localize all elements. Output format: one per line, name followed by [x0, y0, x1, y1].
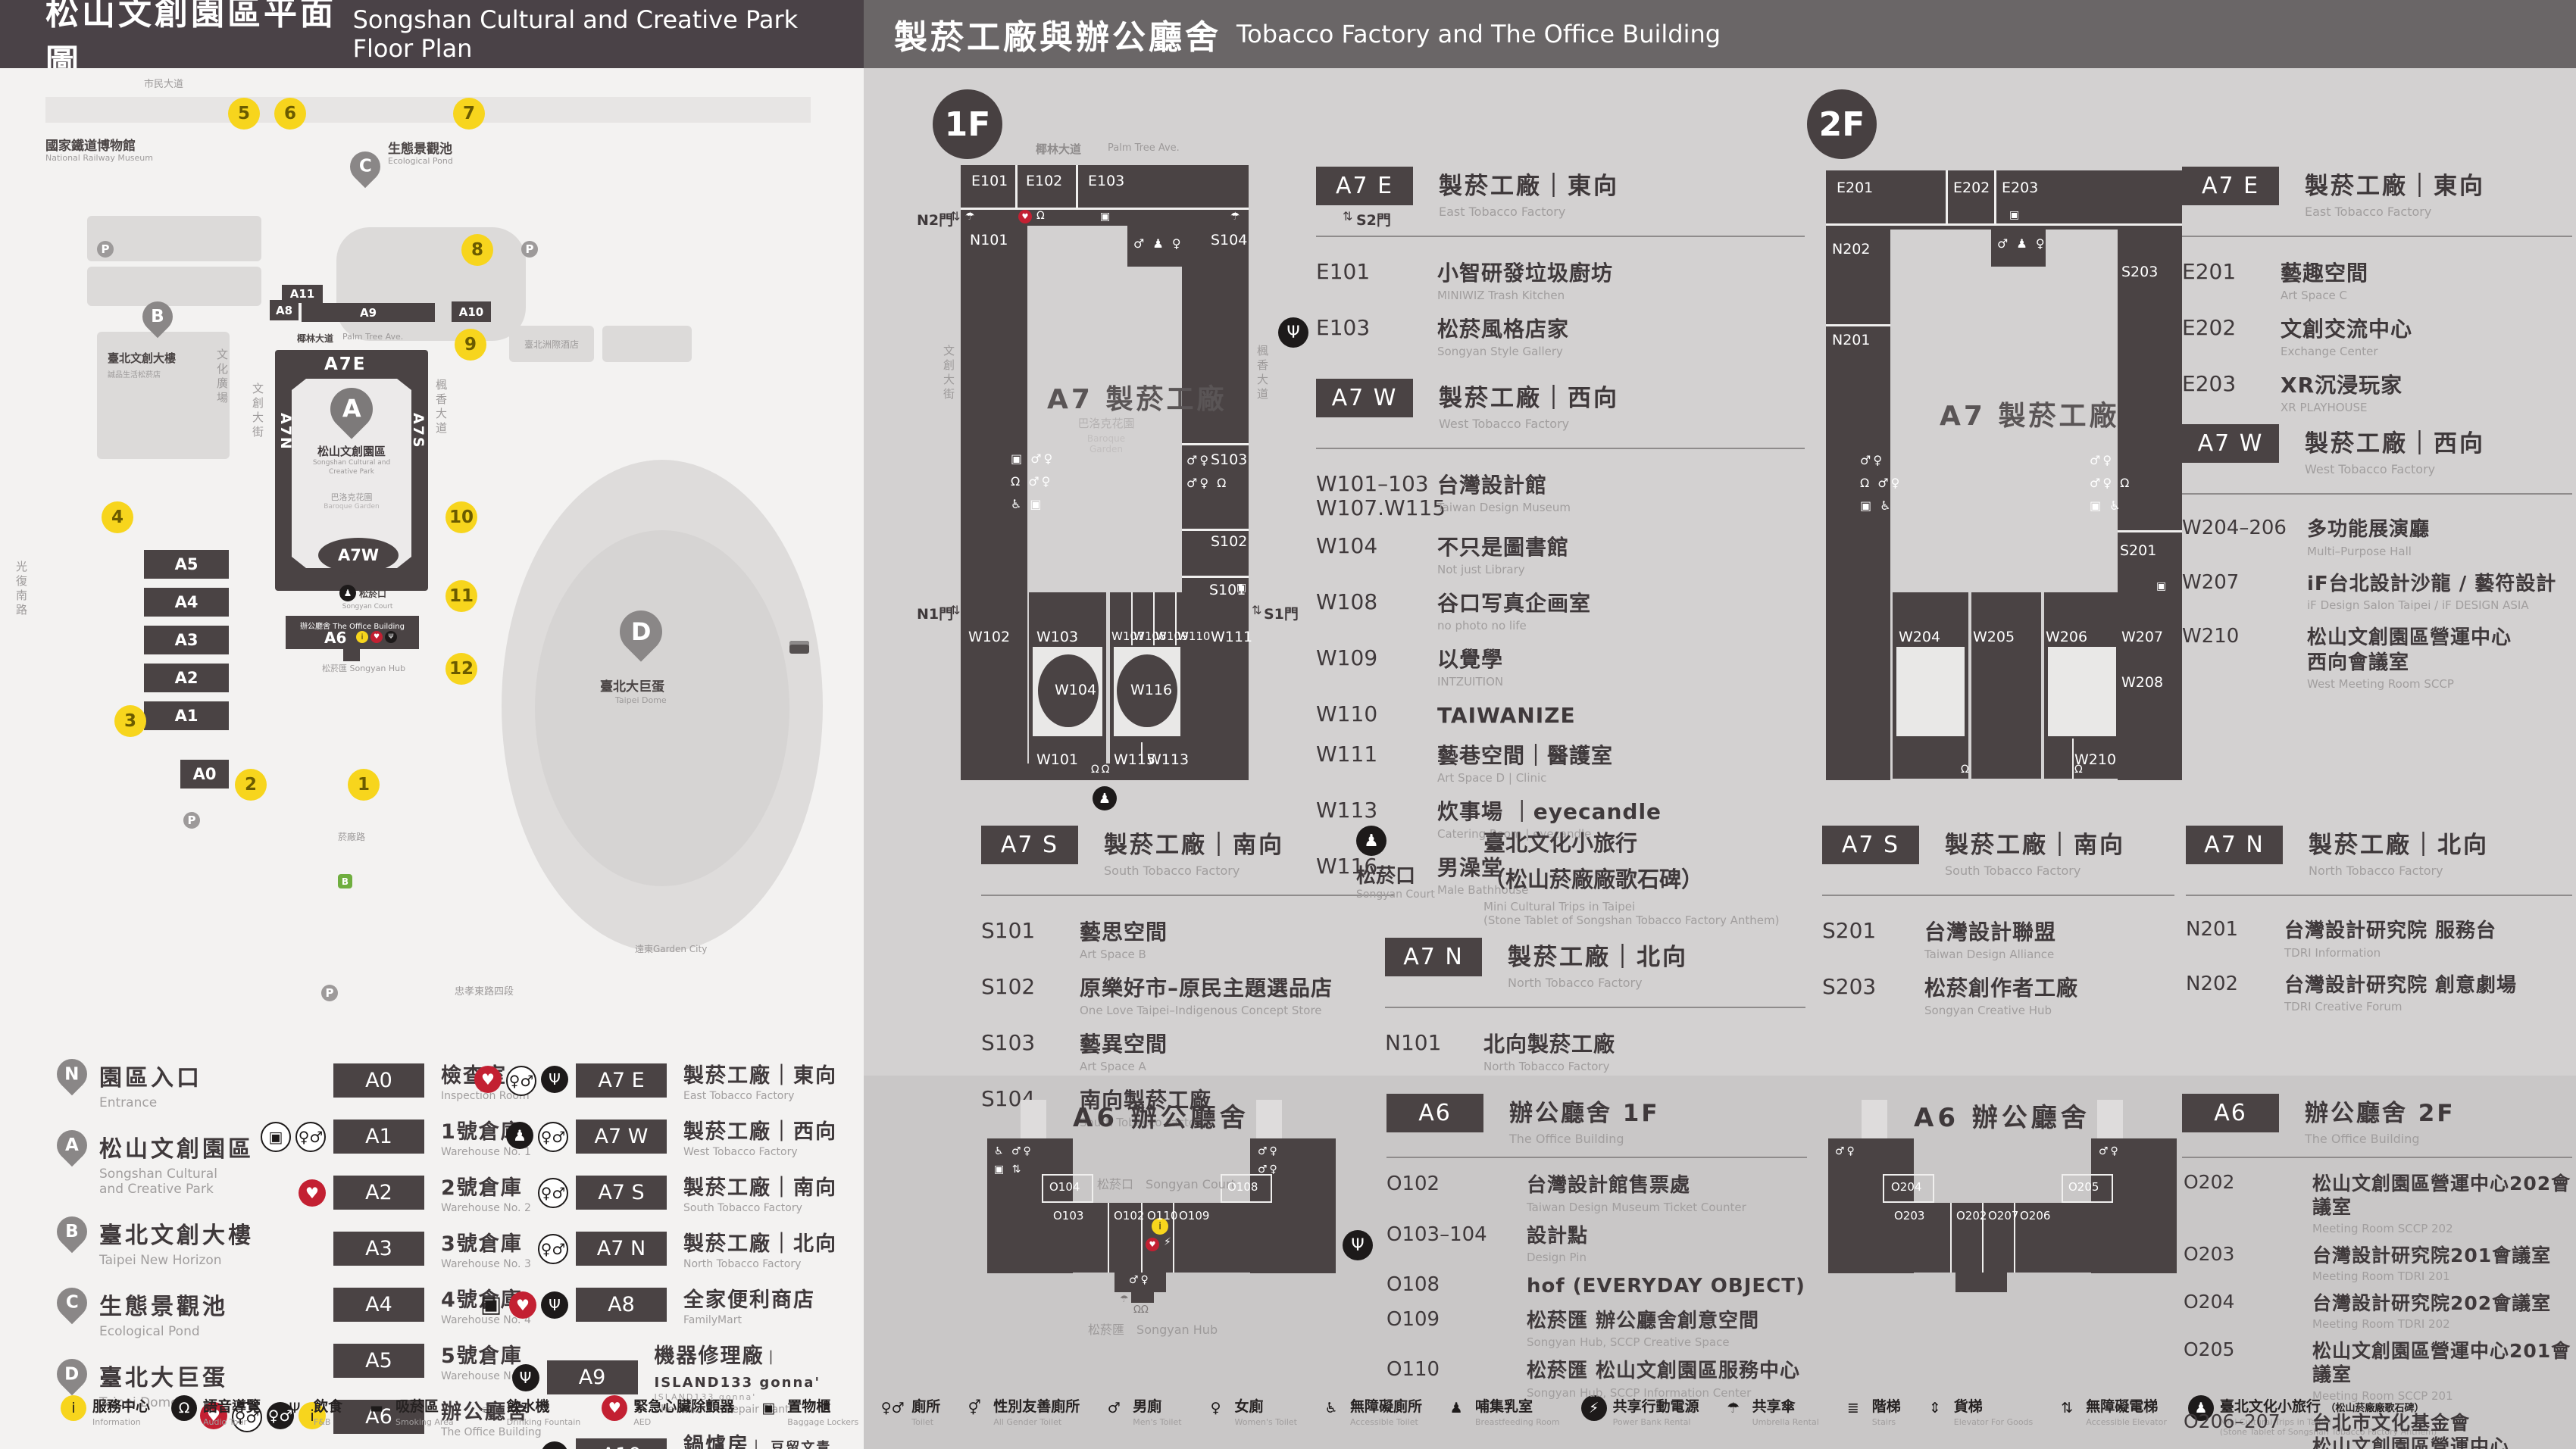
- room-code: O110: [1386, 1359, 1527, 1400]
- court-title2: （松山菸廠廠歌石碑）: [1483, 862, 1779, 894]
- room-code: O108: [1386, 1274, 1527, 1299]
- legend-row-icons: Ψ: [470, 1364, 539, 1391]
- gate-s1: S1門: [1264, 603, 1299, 623]
- room-label: O103: [1053, 1209, 1083, 1223]
- room-label: S102: [1211, 533, 1247, 550]
- building-code-box: A2: [333, 1176, 424, 1210]
- entrance-number: 2: [235, 769, 267, 801]
- section-title-en: North Tobacco Factory: [2309, 863, 2489, 878]
- a9-block: A9: [302, 303, 435, 322]
- a7s-label: A7S: [410, 413, 427, 449]
- a7-big-label-1f: A7 製菸工廠: [1047, 377, 1227, 417]
- right-header-title-zh: 製菸工廠與辦公廳舍: [894, 10, 1221, 58]
- room-label: S203: [2121, 264, 2158, 280]
- gate-arrows: ⇅: [950, 209, 960, 223]
- icon-legend-en: All Gender Toilet: [993, 1417, 1080, 1427]
- section-a7e-1f: A7 E 製菸工廠｜東向 East Tobacco Factory E101 小…: [1316, 167, 1805, 372]
- hotel-building: 臺北洲際酒店: [509, 326, 594, 362]
- building-name-en: North Tobacco Factory: [683, 1258, 837, 1270]
- icon-legend-item: ♥ 緊急心臟除顫器 AED: [602, 1395, 734, 1437]
- section-title-zh: 製菸工廠｜南向: [1104, 826, 1284, 860]
- baroque-label-zh: 巴洛克花園: [292, 491, 411, 503]
- parking-icon: P: [321, 985, 338, 1001]
- icon-legend-zh: 階梯: [1872, 1398, 1901, 1415]
- section-badge: A7 S: [981, 826, 1078, 864]
- icon-legend-zh: 男廁: [1133, 1398, 1161, 1415]
- legend-icon: ☕: [475, 1395, 501, 1421]
- icon-legend-text: 置物櫃 Baggage Lockers: [787, 1395, 858, 1427]
- room-code: O109: [1386, 1309, 1527, 1350]
- room-code: E203: [2182, 372, 2281, 414]
- room-row: W207 iF台北設計沙龍 / 藝符設計 iF Design Salon Tai…: [2182, 572, 2572, 613]
- a6-stub: [343, 649, 360, 661]
- section-title-en: The Office Building: [1509, 1132, 1660, 1146]
- floor-badge-1f: 1F: [933, 89, 1002, 159]
- legend-icon: ♂: [1101, 1395, 1127, 1421]
- warehouse-block: A1: [144, 701, 229, 730]
- restroom-icons: ♂♀: [1129, 1274, 1151, 1286]
- legend-icon: ♟: [506, 1122, 533, 1149]
- icon-cluster: ▣ ⇅: [994, 1163, 1023, 1176]
- street-maple: 楓香大道: [433, 379, 449, 436]
- room-zh: 台灣設計館: [1437, 472, 1571, 498]
- tower: [2097, 1100, 2123, 1142]
- room-zh2: 西向會議室: [2307, 651, 2512, 676]
- hub-map-label-1f: 松菸匯 Songyan Hub: [1088, 1319, 1218, 1338]
- room-zh: 台灣設計聯盟: [1924, 919, 2056, 945]
- building-code-box: A7 W: [576, 1120, 667, 1154]
- room-code: O206–207: [2184, 1411, 2312, 1449]
- room-zh: hof (EVERYDAY OBJECT): [1527, 1274, 1805, 1299]
- divider: [2072, 739, 2074, 779]
- room-en: Meeting Room TDRI 202: [2312, 1317, 2551, 1331]
- icon-legend-text: 廁所 Toilet: [911, 1395, 940, 1427]
- legend-icon: Ψ: [512, 1364, 539, 1391]
- room-row: S201 台灣設計聯盟 Taiwan Design Alliance: [1822, 919, 2174, 961]
- icon-legend-en: Women's Toilet: [1235, 1417, 1297, 1427]
- legend-icon: ⇕: [1922, 1395, 1948, 1421]
- legend-icon: ♥: [474, 1066, 502, 1093]
- room-en: West Meeting Room SCCP: [2307, 677, 2512, 691]
- room-label: S201: [2120, 542, 2156, 559]
- legend-icon: ♀♂: [538, 1234, 568, 1264]
- icon-cluster: ♂♀: [1258, 1145, 1280, 1157]
- room-row: W204–206 多功能展演廳 Multi–Purpose Hall: [2182, 517, 2572, 558]
- power-icon: ⚡: [1164, 1236, 1174, 1248]
- room-code: S201: [1822, 919, 1924, 961]
- court-map-label-1f: 松菸口 Songyan Court: [1097, 1174, 1236, 1192]
- section-a6-1f: A6 辦公廳舍 1F The Office Building O102 台灣設計…: [1386, 1094, 1807, 1410]
- icon-legend-en: Information: [92, 1417, 150, 1427]
- a0-block: A0: [180, 760, 229, 789]
- icon-cluster: ♂♀: [2090, 453, 2114, 467]
- icon-legend-en: Baggage Lockers: [787, 1417, 858, 1427]
- legend-row-icons: ♥♀♂Ψ: [470, 1066, 568, 1096]
- room-label: E203: [2002, 180, 2038, 196]
- room-label: O204: [1891, 1180, 1921, 1194]
- street-cultural-blvd-1f: 文創大街: [941, 345, 957, 402]
- room-row: O102 台灣設計館售票處 Taiwan Design Museum Ticke…: [1386, 1173, 1807, 1214]
- room-label: O110: [1147, 1209, 1177, 1223]
- room-zh: TAIWANIZE: [1437, 702, 1576, 729]
- legend-icon: ♿: [1318, 1395, 1344, 1421]
- room-en: Art Space D | Clinic: [1437, 771, 1613, 785]
- icon-legend-item: ♀♂ 廁所 Toilet: [880, 1395, 940, 1437]
- a7-south-wing-1f: [1182, 226, 1249, 780]
- icon-cluster: Ω ♂♀: [1011, 474, 1052, 489]
- icon-legend-item: ⇕ 貨梯 Elevator For Goods: [1922, 1395, 2033, 1437]
- room-zh: 松菸匯 松山文創園區服務中心: [1527, 1359, 1800, 1384]
- section-title-en: The Office Building: [2305, 1132, 2456, 1146]
- building-code-box: A4: [333, 1288, 424, 1322]
- room-code: N201: [2186, 919, 2284, 960]
- section-a7s-2f: A7 S 製菸工廠｜南向 South Tobacco Factory S201 …: [1822, 826, 2174, 1031]
- room-label: E202: [1953, 180, 1990, 196]
- room-code: E101: [1316, 260, 1437, 302]
- room-label: W206: [2046, 629, 2087, 645]
- room-label: W104: [1055, 682, 1096, 698]
- room-en: Songyan Style Gallery: [1437, 345, 1569, 358]
- section-title-zh: 製菸工廠｜東向: [1439, 167, 1619, 201]
- icon-legend-en: Accessible Toilet: [1350, 1417, 1422, 1427]
- street-yanchang: 菸廠路: [338, 830, 365, 843]
- room-row: W111 藝巷空間｜醫護室 Art Space D | Clinic: [1316, 742, 1805, 785]
- room-code: N202: [2186, 973, 2284, 1014]
- room-zh: 台灣設計研究院 創意劇場: [2284, 973, 2517, 998]
- legend-pin-en: Entrance: [99, 1095, 202, 1110]
- restroom-icons: ♂ ♟ ♀: [1997, 236, 2047, 251]
- umbrella-icon: ☂: [1230, 211, 1243, 223]
- room-code: O203: [2184, 1244, 2312, 1283]
- room-code: W101–103W107.W115: [1316, 472, 1437, 520]
- gate-arrows: ⇅: [1252, 603, 1261, 617]
- room-code: O205: [2184, 1339, 2312, 1403]
- divider: [2182, 493, 2572, 495]
- icon-legend-zh: 語音導覽: [203, 1398, 261, 1415]
- section-badge: A7 E: [1316, 167, 1413, 205]
- room-zh: 谷口写真企画室: [1437, 590, 1591, 617]
- restroom-icons: ♂ ♟ ♀: [1133, 236, 1183, 251]
- locker-icon: ▣: [2009, 209, 2021, 221]
- park-court-zh: 松菸口: [359, 587, 386, 600]
- a7-big-label-2f: A7 製菸工廠: [1940, 394, 2119, 433]
- room-zh: 設計點: [1527, 1224, 1588, 1249]
- building-code-box: A5: [333, 1344, 424, 1378]
- a6-map-title-1f: A6 辦公廳舍: [1073, 1097, 1249, 1134]
- parking-icon: P: [521, 241, 538, 258]
- room-row: E201 藝趣空間 Art Space C: [2182, 260, 2572, 302]
- divider: [1015, 165, 1018, 208]
- room-row: O103–104 設計點 Design Pin: [1386, 1224, 1807, 1265]
- a7e-label: A7E: [324, 354, 367, 374]
- icon-cluster: ♂♀: [1258, 1163, 1280, 1176]
- legend-pin-icon: N: [51, 1053, 94, 1096]
- divider: [1822, 895, 2174, 896]
- pin-box: A: [57, 1130, 99, 1160]
- entrance-number: 12: [445, 653, 477, 685]
- room-zh: 多功能展演廳: [2307, 517, 2430, 542]
- room-label: W113: [1147, 751, 1189, 768]
- divider: [981, 895, 1394, 896]
- room-row: E202 文創交流中心 Exchange Center: [2182, 316, 2572, 358]
- legend-icon: ▣: [477, 1291, 505, 1319]
- building-code-box: A8: [576, 1288, 667, 1322]
- section-title-zh: 製菸工廠｜南向: [1945, 826, 2125, 860]
- legend-row-icons: ♥: [227, 1179, 326, 1207]
- legend-icon: ♀♂: [880, 1395, 905, 1421]
- building-name-zh: 機器修理廠｜ ISLAND133 gonna'ISLAND133 gonna': [655, 1339, 864, 1402]
- legend-icon: Ψ: [541, 1291, 568, 1319]
- building-name-zh: 製菸工廠｜北向: [683, 1227, 837, 1257]
- legend-pin-zh: 生態景觀池: [99, 1288, 228, 1321]
- room-zh: 台灣設計館售票處: [1527, 1173, 1746, 1198]
- room-zh: 文創交流中心: [2281, 316, 2412, 342]
- baroque-label-en: Baroque Garden: [292, 503, 411, 511]
- legend-icon: ▣: [755, 1395, 781, 1421]
- parking-icon: P: [97, 241, 114, 258]
- divider: [1950, 1203, 1952, 1273]
- pin-c: C: [344, 145, 387, 189]
- room-code: E202: [2182, 316, 2281, 358]
- legend-icon: ⇅: [2054, 1395, 2080, 1421]
- room-zh: 藝異空間: [1080, 1031, 1168, 1057]
- legend-pin-zh: 臺北大巨蛋: [99, 1359, 228, 1392]
- taipei-dome-roof: [535, 530, 789, 886]
- section-badge: A7 N: [2186, 826, 2283, 864]
- icon-cluster: ♂♀: [1835, 1145, 1857, 1157]
- street-palm-en: Palm Tree Ave.: [342, 332, 403, 342]
- building-name: 全家便利商店 FamilyMart: [683, 1283, 815, 1326]
- room-label: W103: [1036, 629, 1078, 645]
- a7-south-wing-2f: [2118, 227, 2182, 780]
- room-code: E201: [2182, 260, 2281, 302]
- room-label: S104: [1211, 232, 1247, 248]
- icon-cluster: ♂♀: [2099, 1145, 2121, 1157]
- icon-legend-zh: 無障礙電梯: [2086, 1398, 2158, 1415]
- park-court-en: Songyan Court: [318, 603, 417, 611]
- icon-legend-en: Smoking Area: [395, 1417, 454, 1427]
- divider: [1826, 223, 2182, 226]
- umbrella-icon: ☂: [1120, 1294, 1129, 1305]
- icon-legend-item: ☕ 飲水機 Drinking Fountain: [475, 1395, 581, 1437]
- room-label: N202: [1832, 241, 1870, 258]
- section-title-en: East Tobacco Factory: [2305, 205, 2485, 219]
- building-code-box: A7 S: [576, 1176, 667, 1210]
- divider: [1182, 443, 1249, 445]
- youbike-icon: B: [338, 874, 352, 888]
- building-code-box: A9: [547, 1360, 638, 1394]
- legend-icon: ▣: [261, 1122, 291, 1152]
- locker-icon: ▣: [1100, 211, 1112, 223]
- mall-building: [602, 326, 692, 362]
- legend-pin-en: Ecological Pond: [99, 1324, 228, 1339]
- room-row: N202 台灣設計研究院 創意劇場 TDRI Creative Forum: [2186, 973, 2572, 1014]
- section-title-en: East Tobacco Factory: [1439, 205, 1619, 219]
- floor-plan-poster: 松山文創園區平面圖 Songshan Cultural and Creative…: [0, 0, 2576, 1449]
- legend-pin-text: 生態景觀池 Ecological Pond: [99, 1288, 228, 1339]
- umbrella-icon: ☂: [965, 211, 977, 223]
- room-zh: 松菸創作者工廠: [1924, 975, 2078, 1001]
- room-zh: 松山文創園區營運中心: [2307, 626, 2512, 651]
- room-icon: Ψ: [1278, 317, 1308, 348]
- room-en: XR PLAYHOUSE: [2281, 401, 2402, 414]
- pond-label-en: Ecological Pond: [388, 156, 453, 166]
- icon-legend-text: 男廁 Men's Toilet: [1133, 1395, 1181, 1427]
- songyan-court-icon: ♟: [1356, 826, 1386, 856]
- building-name-en: FamilyMart: [683, 1314, 815, 1326]
- bus-icon: [789, 641, 809, 654]
- room-zh: 台北市文化基金會: [2312, 1411, 2572, 1435]
- icon-legend-en: Elevator For Goods: [1954, 1417, 2033, 1427]
- tower: [1862, 1100, 1887, 1142]
- room-label: O109: [1179, 1209, 1209, 1223]
- building-name-en: East Tobacco Factory: [683, 1090, 837, 1102]
- section-badge: A7 S: [1822, 826, 1919, 864]
- room-row: O108 hof (EVERYDAY OBJECT): [1386, 1274, 1807, 1299]
- room-zh: 不只是圖書館: [1437, 534, 1569, 561]
- room-zh: 炊事場 ｜eyecandle: [1437, 798, 1662, 825]
- icon-legend-text: 飲食 F&B: [314, 1395, 342, 1427]
- room-en: Multi–Purpose Hall: [2307, 545, 2430, 558]
- room-code: W108: [1316, 590, 1437, 632]
- legend-pin-icon: B: [51, 1210, 94, 1254]
- fnb-icon: Ψ: [385, 631, 397, 643]
- building-code-box: A1: [333, 1120, 424, 1154]
- room-row: S101 藝思空間 Art Space B: [981, 919, 1394, 961]
- legend-icon: Ψ: [541, 1441, 568, 1449]
- icon-legend-item: ▣ 置物櫃 Baggage Lockers: [755, 1395, 858, 1437]
- icon-legend-en: Men's Toilet: [1133, 1417, 1181, 1427]
- warehouse-block: A5: [144, 550, 229, 579]
- room-en: Exchange Center: [2281, 345, 2412, 358]
- aed-icon: ♥: [1146, 1238, 1159, 1251]
- room-code: S203: [1822, 975, 1924, 1017]
- icon-legend-en: Audio Tour: [203, 1417, 261, 1427]
- room-code: W207: [2182, 572, 2307, 613]
- icon-legend-zh: 吸菸區: [395, 1398, 439, 1415]
- room-zh: 台灣設計研究院 服務台: [2284, 919, 2496, 944]
- a7w-oval: A7W: [318, 538, 399, 573]
- legend-icon: Ψ: [541, 1066, 568, 1093]
- aed-icon: ♥: [370, 631, 383, 643]
- room-code: S101: [981, 919, 1080, 961]
- warehouse-block: A4: [144, 588, 229, 617]
- legend-icon: ♥: [509, 1291, 536, 1319]
- fnb-icon: Ψ: [1343, 1230, 1373, 1260]
- aed-icon: ♥: [1018, 210, 1032, 223]
- section-badge: A6: [1386, 1094, 1483, 1132]
- legend-icon: ♥: [602, 1395, 627, 1421]
- divider: [2182, 236, 2572, 237]
- section-title-en: North Tobacco Factory: [1508, 976, 1688, 990]
- room-row: O204 台灣設計研究院202會議室 Meeting Room TDRI 202: [2182, 1291, 2572, 1331]
- icon-legend-item: ♀ 女廁 Women's Toilet: [1203, 1395, 1297, 1437]
- divider: [1076, 165, 1078, 208]
- a6-stub2-1f: [1131, 1292, 1154, 1303]
- songyan-court-icon: ♟: [1093, 786, 1117, 810]
- room-row: O109 松菸匯 辦公廳舍創意空間 Songyan Hub, SCCP Crea…: [1386, 1309, 1807, 1350]
- room-label: W110: [1177, 629, 1210, 643]
- building-name: 製菸工廠｜東向 East Tobacco Factory: [683, 1059, 837, 1102]
- room-row: N201 台灣設計研究院 服務台 TDRI Information: [2186, 919, 2572, 960]
- room-row: O110 松菸匯 松山文創園區服務中心 Songyan Hub, SCCP In…: [1386, 1359, 1807, 1400]
- room-zh: iF台北設計沙龍 / 藝符設計: [2307, 572, 2556, 597]
- audio-icons: ΩΩ: [1133, 1304, 1149, 1316]
- icon-cluster: ♂♀: [1860, 453, 1884, 467]
- pin-box: B: [57, 1216, 99, 1247]
- entrance-number: 3: [114, 705, 146, 737]
- room-label: W205: [1973, 629, 2015, 645]
- legend-b-list: ♥♀♂Ψ A7 E 製菸工廠｜東向 East Tobacco Factory ♟…: [470, 1059, 864, 1449]
- audio-icons: ΩΩ: [1091, 764, 1111, 776]
- parking-icon: P: [183, 812, 200, 829]
- divider: [1182, 576, 1249, 578]
- room-row: W104 不只是圖書館 Not just Library: [1316, 534, 1805, 576]
- legend-row: ♟♀♂ A7 W 製菸工廠｜西向 West Tobacco Factory: [470, 1115, 864, 1158]
- icon-legend-zh: 女廁: [1235, 1398, 1264, 1415]
- room-label: W116: [1130, 682, 1172, 698]
- street-palm-zh: 椰林大道: [297, 332, 333, 345]
- divider: [2182, 1157, 2572, 1158]
- divider: [1182, 529, 1249, 531]
- building-name: 製菸工廠｜西向 West Tobacco Factory: [683, 1115, 837, 1158]
- pond-label-zh: 生態景觀池: [388, 138, 452, 157]
- a7w-label: A7W: [338, 546, 379, 564]
- entrance-number: 1: [348, 769, 380, 801]
- a10-block: A10: [452, 301, 491, 322]
- legend-row: ♀♂ A7 S 製菸工廠｜南向 South Tobacco Factory: [470, 1171, 864, 1214]
- room-label: N101: [970, 232, 1008, 248]
- room-code: E103: [1316, 316, 1437, 358]
- legend-icon: ♀: [1203, 1395, 1229, 1421]
- room-code: W111: [1316, 742, 1437, 785]
- room-row: S103 藝異空間 Art Space A: [981, 1031, 1394, 1073]
- entrance-number: 10: [445, 501, 477, 533]
- room-en: MINIWIZ Trash Kitchen: [1437, 289, 1613, 302]
- room-row: W101–103W107.W115 台灣設計館 Taiwan Design Mu…: [1316, 472, 1805, 520]
- section-title-zh: 製菸工廠｜西向: [2305, 424, 2485, 458]
- room-row: S102 原樂好市–原民主題選品店 One Love Taipei–Indige…: [981, 975, 1394, 1017]
- building-name-zh: 製菸工廠｜東向: [683, 1059, 837, 1088]
- room-row: W210 松山文創園區營運中心 西向會議室 West Meeting Room …: [2182, 626, 2572, 691]
- icon-legend-zh: 貨梯: [1954, 1398, 1983, 1415]
- legend-pin-text: 園區入口 Entrance: [99, 1059, 202, 1110]
- room-en: Not just Library: [1437, 563, 1569, 576]
- room-row: N101 北向製菸工廠 North Tobacco Factory: [1385, 1031, 1805, 1073]
- civic-blvd-road: [45, 97, 811, 123]
- legend-icon: ♀♂: [506, 1066, 536, 1096]
- room-en: INTZUITION: [1437, 675, 1503, 689]
- room-code: W110: [1316, 702, 1437, 729]
- section-title-zh: 製菸工廠｜北向: [2309, 826, 2489, 860]
- room-zh: 松菸匯 辦公廳舍創意空間: [1527, 1309, 1759, 1334]
- park-center-label-zh: 松山文創園區: [292, 443, 411, 459]
- w205-block: [1971, 592, 2041, 779]
- icon-legend-text: 性別友善廁所 All Gender Toilet: [993, 1395, 1080, 1427]
- songyan-court-icon: ♟: [339, 585, 356, 601]
- room-en: Design Pin: [1527, 1251, 1588, 1264]
- divider: [1946, 170, 1948, 223]
- room-zh: XR沉浸玩家: [2281, 372, 2402, 398]
- warehouse-block: A3: [144, 626, 229, 654]
- room-code: S103: [981, 1031, 1080, 1073]
- court-zh: 松菸口: [1356, 860, 1462, 888]
- legend-pin-icon: D: [51, 1353, 94, 1396]
- legend-row: ♀♂ A7 N 製菸工廠｜北向 North Tobacco Factory: [470, 1227, 864, 1270]
- icon-cluster: ♿ ▣: [1011, 497, 1044, 511]
- entrance-number: 9: [455, 329, 486, 361]
- room-code: W104: [1316, 534, 1437, 576]
